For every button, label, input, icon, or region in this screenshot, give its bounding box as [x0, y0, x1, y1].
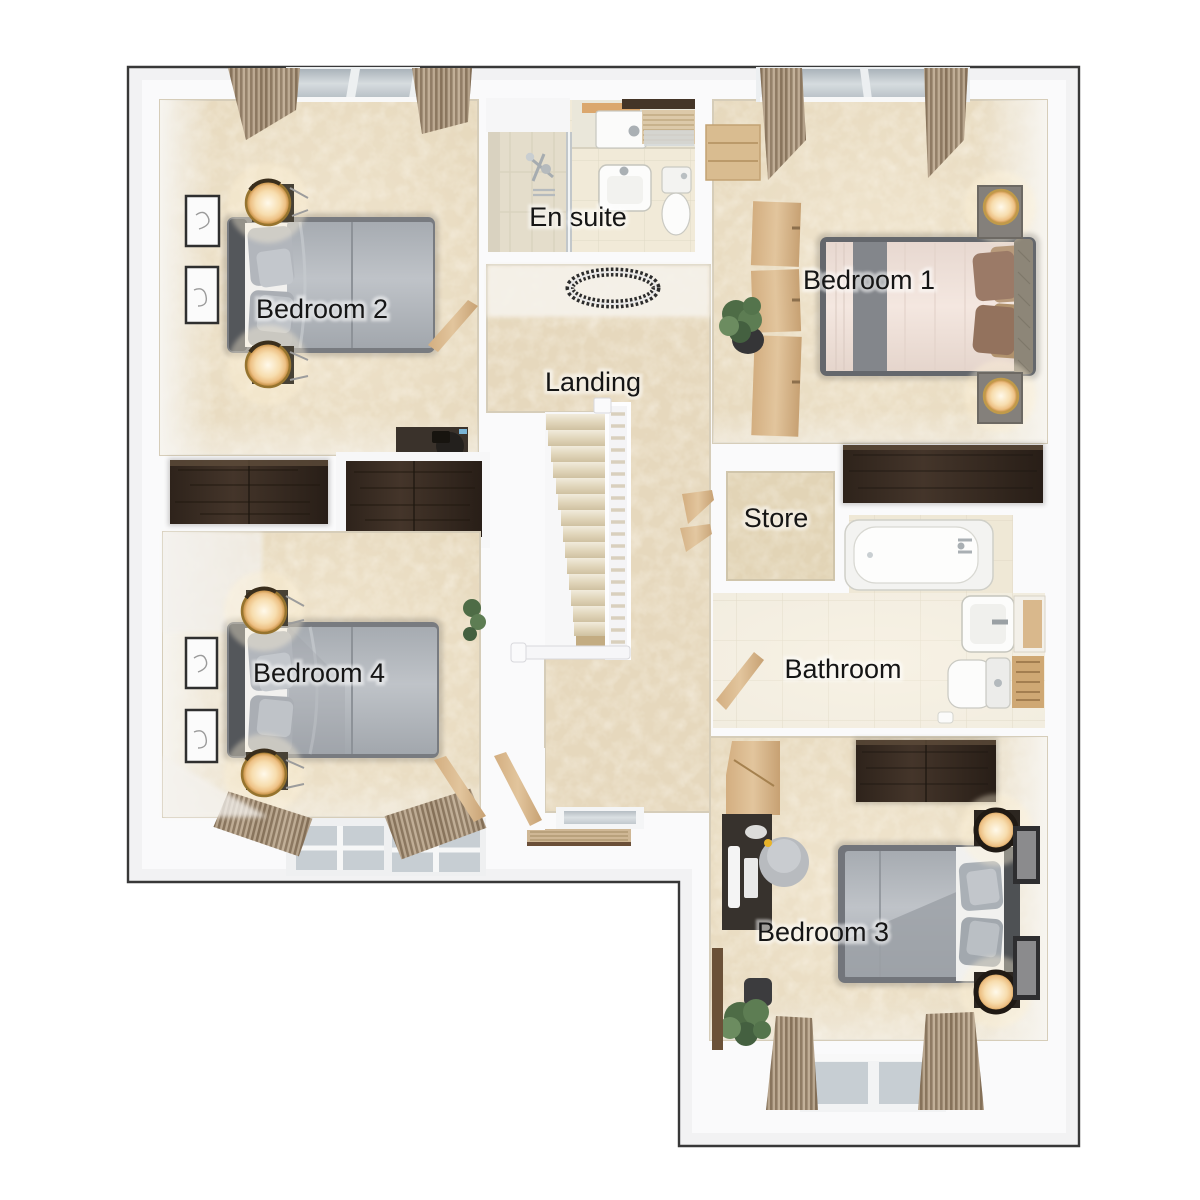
svg-text:Landing: Landing	[545, 367, 641, 397]
svg-text:Store: Store	[744, 503, 809, 533]
svg-text:Bedroom 4: Bedroom 4	[253, 658, 385, 688]
svg-text:Bedroom 3: Bedroom 3	[757, 917, 889, 947]
svg-text:Bathroom: Bathroom	[784, 654, 901, 684]
svg-text:Bedroom 1: Bedroom 1	[803, 265, 935, 295]
svg-text:Bedroom 2: Bedroom 2	[256, 294, 388, 324]
svg-text:En suite: En suite	[529, 202, 627, 232]
